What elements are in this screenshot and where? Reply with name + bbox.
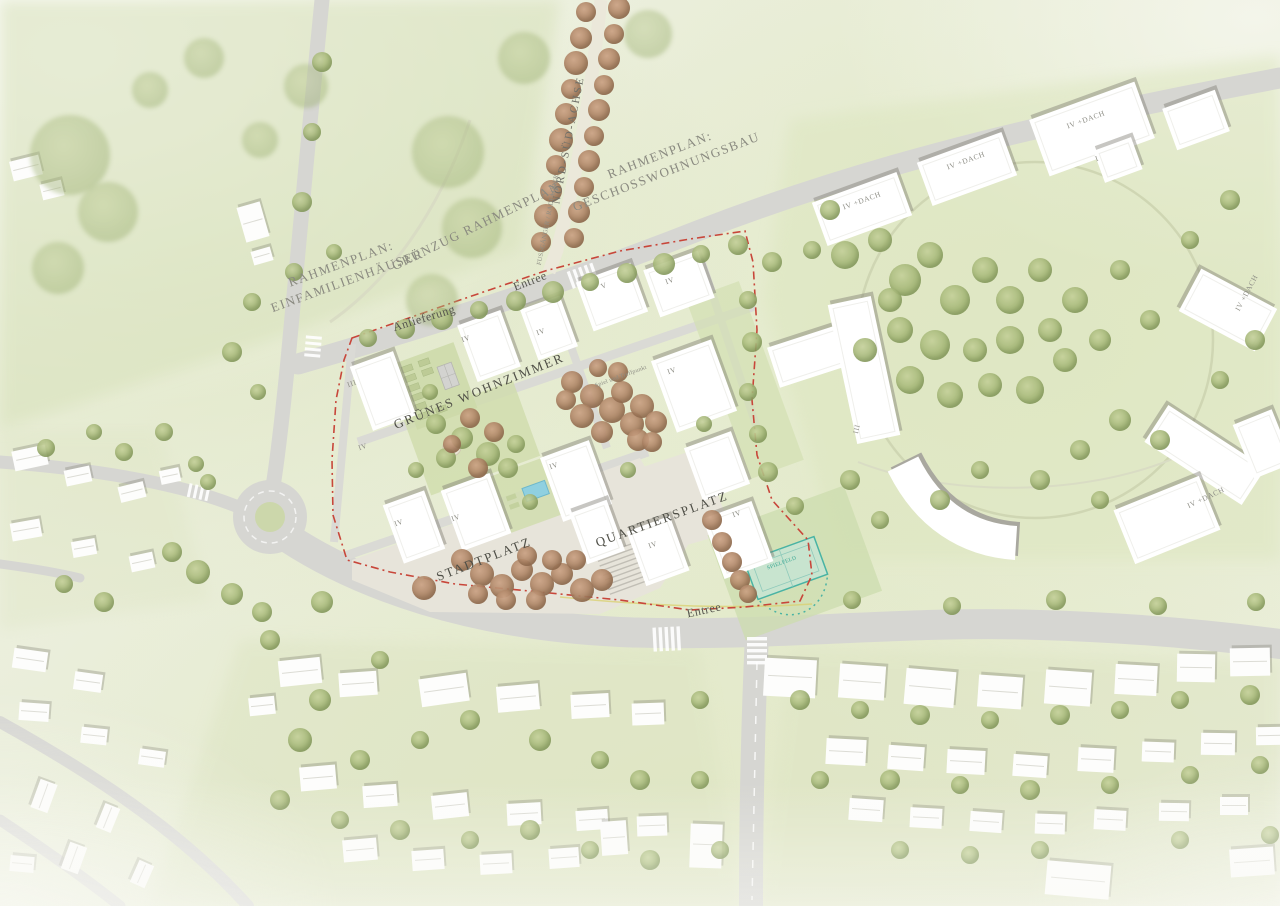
building-floors-label: IV [460, 333, 472, 346]
building-floors-label: IV [548, 460, 560, 473]
area-label-anlieferung: Anlieferung [391, 301, 458, 335]
building-floors-label: IV +DACH [1186, 485, 1226, 511]
labels-layer: RAHMENPLAN: EINFAMILIENHÄUSER GRÜNZUG RA… [0, 0, 1280, 906]
area-label-entree-nord: Entree [511, 267, 549, 295]
building-floors-label: IV [664, 275, 676, 288]
building-floors-label: IV [393, 517, 405, 530]
building-floors-label: IV +DACH [946, 149, 987, 172]
building-floors-label: IV [357, 441, 369, 454]
building-floors-label: I [1094, 154, 1100, 165]
building-floors-label: IV +DACH [842, 189, 883, 212]
area-label-gruenes-wohnzimmer: GRÜNES WOHNZIMMER [391, 349, 567, 434]
area-label-entree-sued: Entree [685, 598, 723, 621]
building-floors-label: IV +DACH [1233, 273, 1261, 313]
building-floors-label: V [599, 280, 608, 292]
building-floors-label: III [346, 378, 358, 391]
area-label-rahmenplan-geschosswohnungsbau: RAHMENPLAN: GESCHOSSWOHNUNGSBAU [564, 111, 763, 215]
building-floors-label: IV [450, 512, 462, 525]
area-label-quartiersplatz: QUARTIERSPLATZ [593, 487, 731, 551]
building-floors-label: IV [666, 365, 678, 378]
building-floors-label: IV +DACH [1066, 108, 1107, 131]
building-floors-label: IV [647, 539, 659, 552]
building-floors-label: IV [535, 326, 547, 339]
building-floors-label: IV [731, 508, 743, 521]
area-label-stadtplatz: STADTPLATZ [434, 533, 534, 585]
area-label-spiel-und-treffpunkt: Spiel und Treffpunkt [594, 364, 648, 390]
masterplan-canvas: RAHMENPLAN: EINFAMILIENHÄUSER GRÜNZUG RA… [0, 0, 1280, 906]
area-label-spielfeld: SPIELFELD [766, 555, 798, 573]
building-floors-label: III [851, 423, 863, 434]
